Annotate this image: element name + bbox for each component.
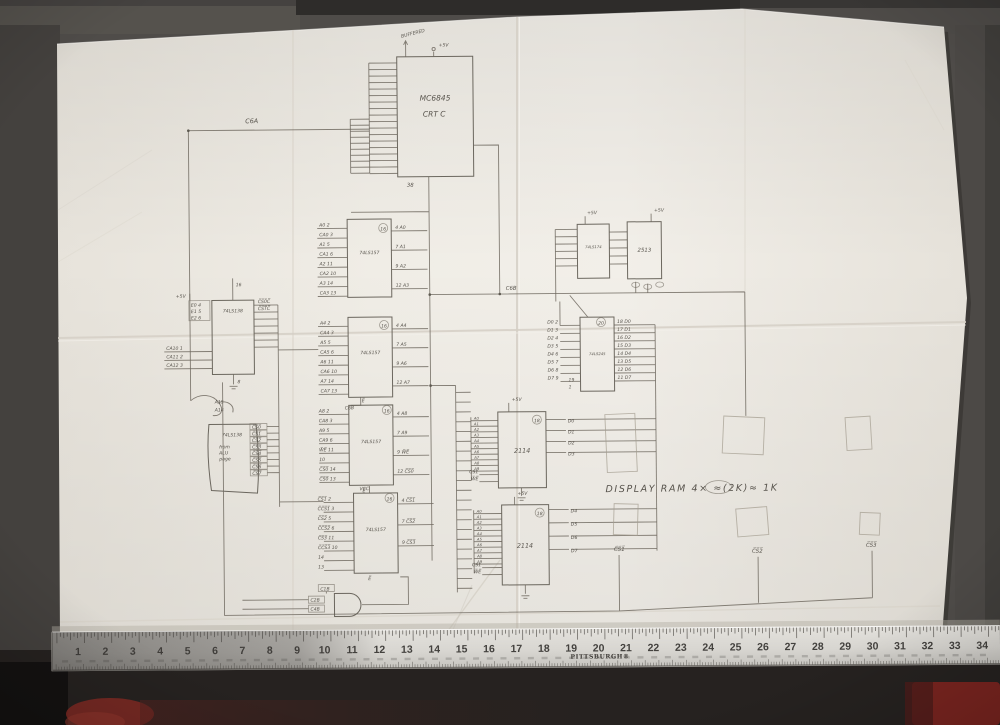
photo-of-schematic: MC6845 CRT C BUFFERED +5V 38 C6A C6B 74L…	[0, 0, 1000, 725]
photo-canvas: MC6845 CRT C BUFFERED +5V 38 C6A C6B 74L…	[0, 0, 1000, 725]
photo-vignette	[0, 0, 1000, 725]
